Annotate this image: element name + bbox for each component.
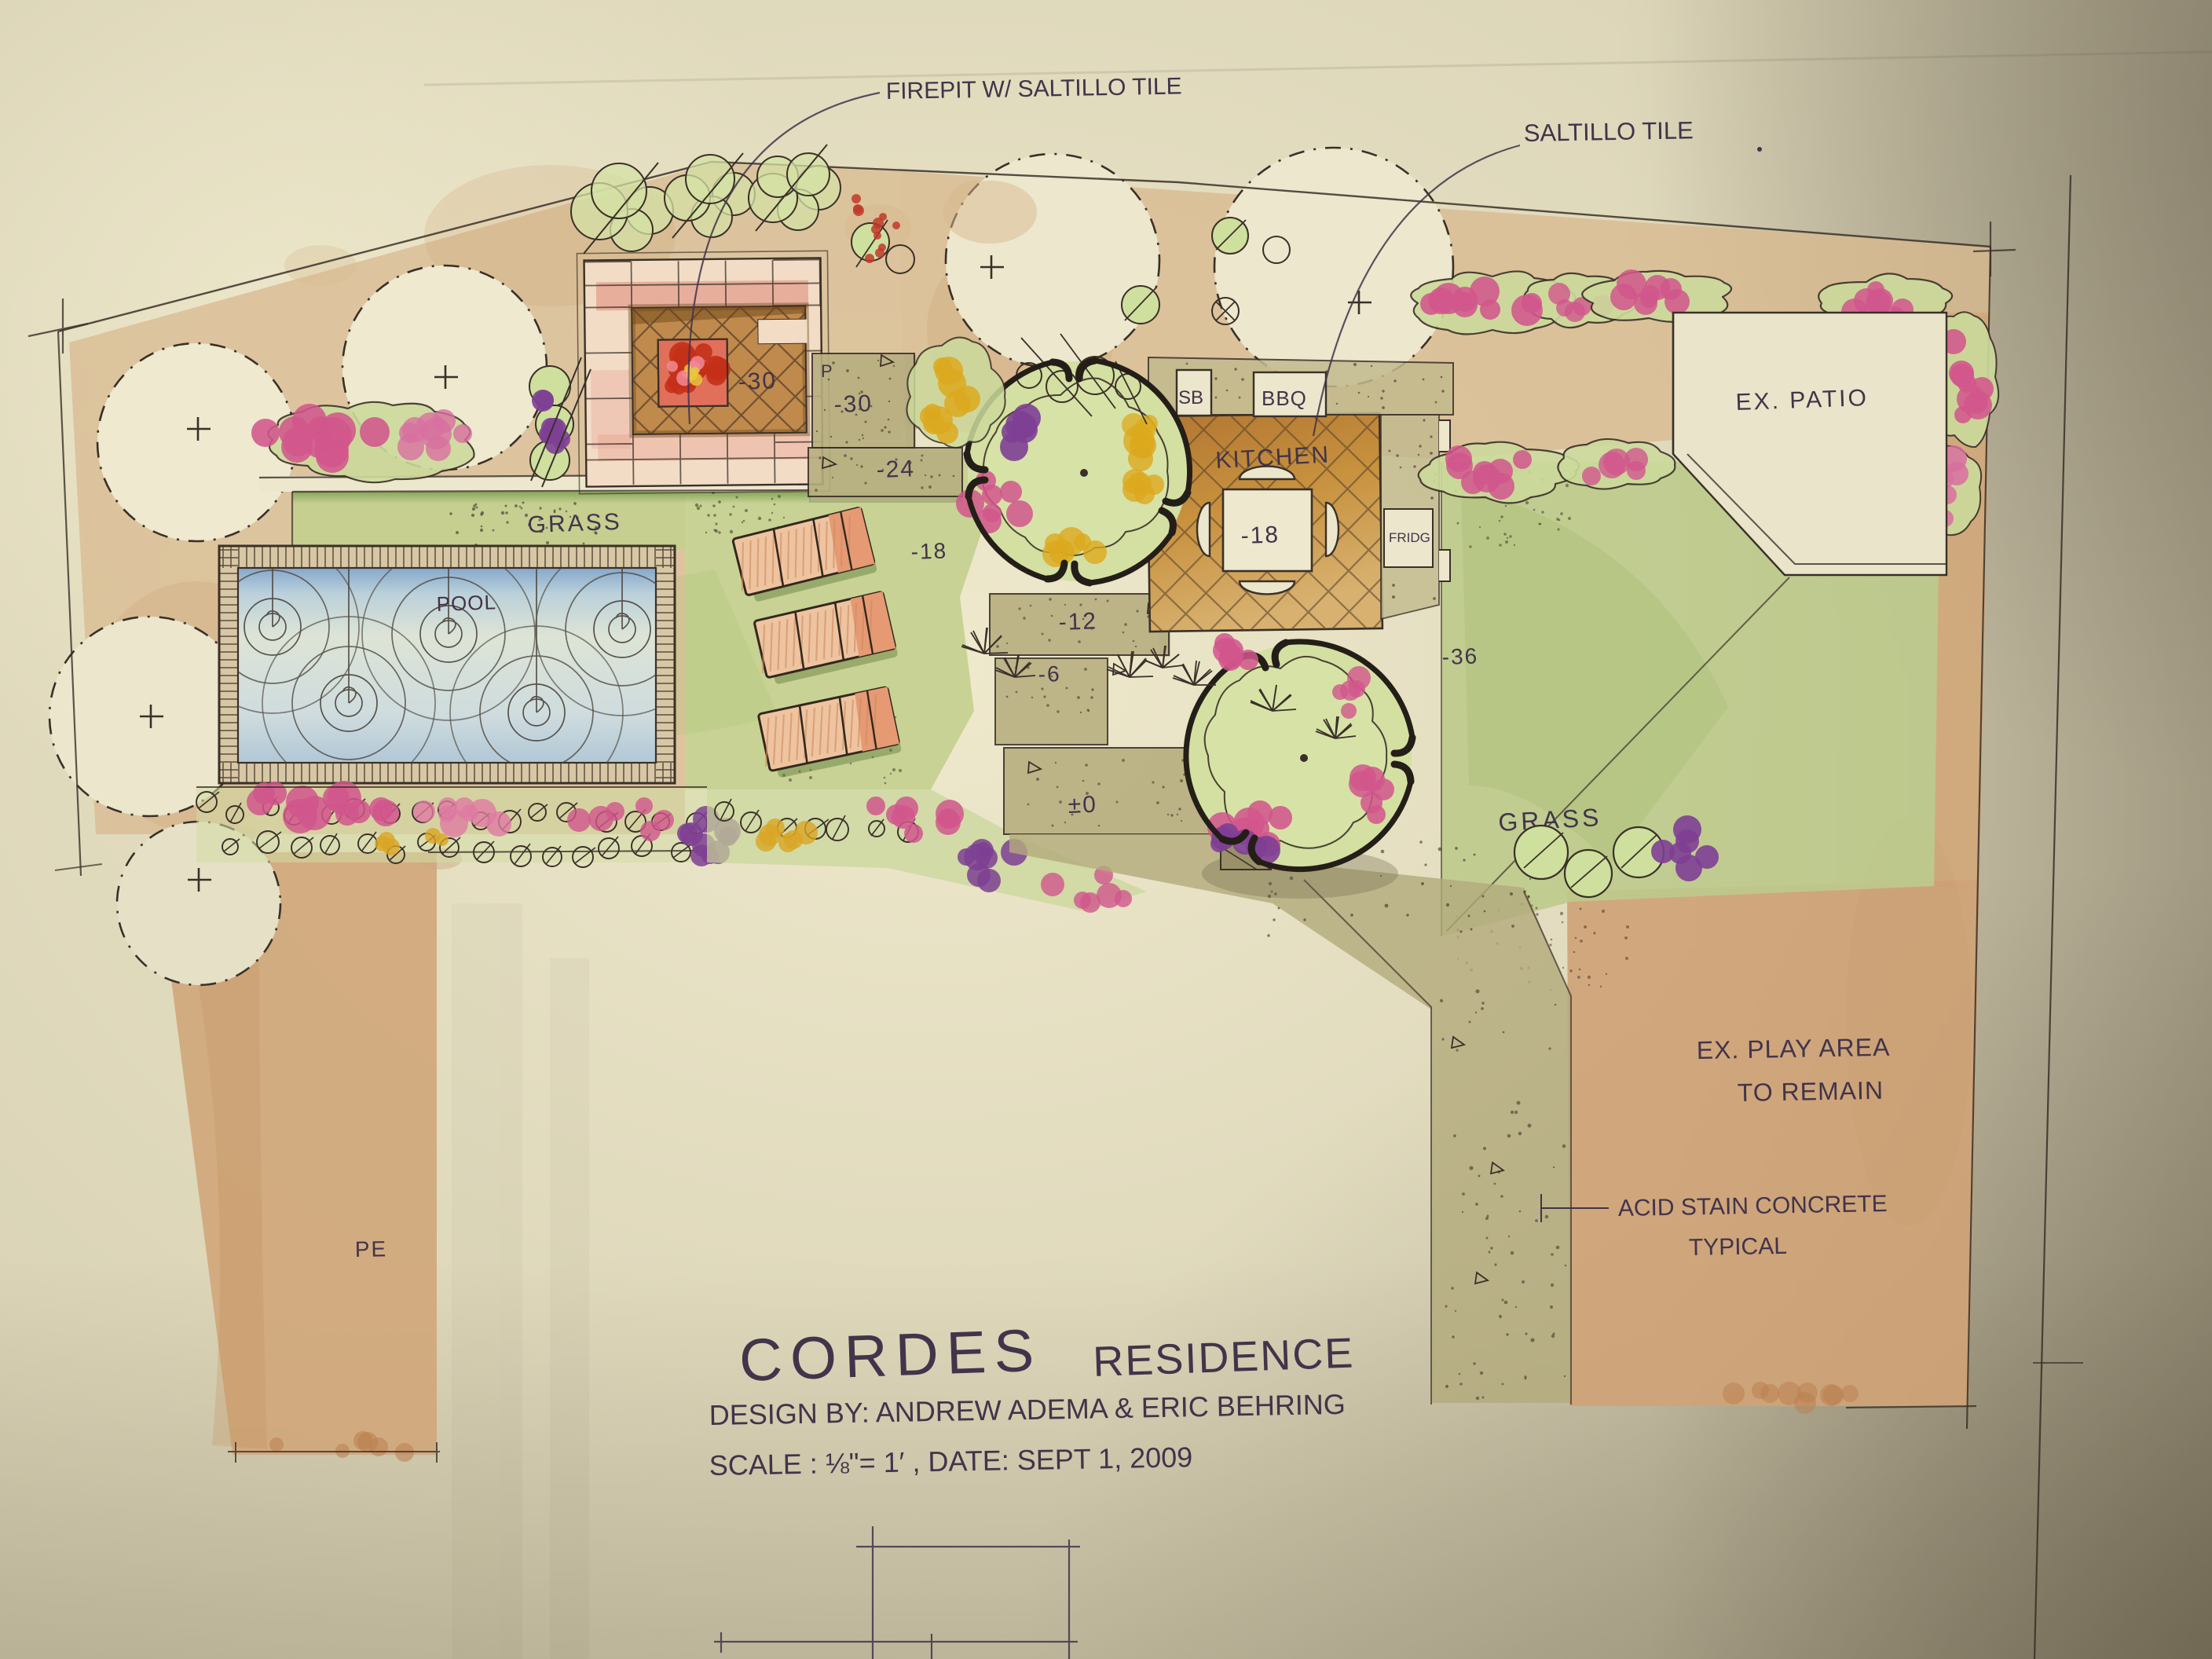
svg-text:CORDES: CORDES xyxy=(738,1317,1043,1394)
svg-text:-30: -30 xyxy=(833,390,873,418)
svg-text:-6: -6 xyxy=(1038,661,1061,687)
svg-text:POOL: POOL xyxy=(436,590,496,616)
svg-text:EX. PATIO: EX. PATIO xyxy=(1735,385,1869,416)
svg-text:SB: SB xyxy=(1178,387,1203,408)
svg-text:±0: ±0 xyxy=(1068,792,1097,819)
svg-text:FRIDG: FRIDG xyxy=(1389,530,1430,545)
svg-text:RESIDENCE: RESIDENCE xyxy=(1092,1329,1355,1386)
svg-text:FIREPIT W/ SALTILLO TILE: FIREPIT W/ SALTILLO TILE xyxy=(886,73,1182,104)
svg-text:TO REMAIN: TO REMAIN xyxy=(1737,1076,1884,1107)
svg-text:PE: PE xyxy=(355,1236,388,1262)
svg-text:P: P xyxy=(821,361,833,381)
svg-text:EX. PLAY AREA: EX. PLAY AREA xyxy=(1696,1033,1890,1064)
svg-text:-30: -30 xyxy=(738,368,777,395)
svg-text:TYPICAL: TYPICAL xyxy=(1689,1233,1788,1261)
svg-text:-36: -36 xyxy=(1441,643,1479,669)
svg-text:GRASS: GRASS xyxy=(527,509,622,538)
svg-text:BBQ: BBQ xyxy=(1262,386,1307,410)
svg-text:SALTILLO TILE: SALTILLO TILE xyxy=(1524,116,1694,147)
svg-text:-18: -18 xyxy=(1240,522,1280,549)
svg-text:-24: -24 xyxy=(876,456,915,483)
svg-text:-18: -18 xyxy=(910,538,948,564)
svg-text:-12: -12 xyxy=(1058,608,1097,635)
svg-text:ACID STAIN CONCRETE: ACID STAIN CONCRETE xyxy=(1618,1191,1888,1221)
